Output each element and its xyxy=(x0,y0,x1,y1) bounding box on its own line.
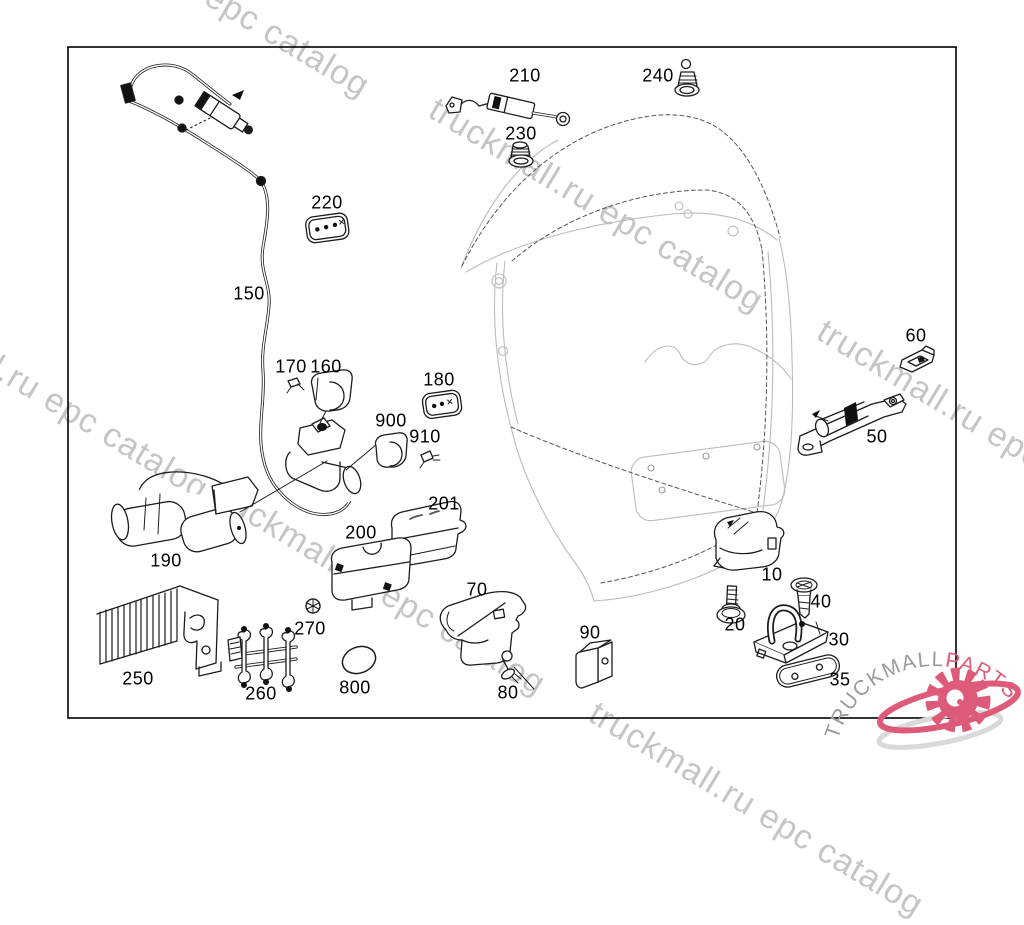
parts-drawings xyxy=(97,60,934,693)
pin-910-drawing xyxy=(420,451,440,468)
tailgate-lock-10-drawing xyxy=(714,512,784,571)
grommet-230-drawing xyxy=(509,142,533,167)
part-label-260: 260 xyxy=(245,684,277,705)
bracket-900-drawing xyxy=(375,433,407,467)
connector-plate-220-drawing xyxy=(305,212,350,244)
nut-270-drawing xyxy=(306,599,320,613)
ball-stud-240-drawing xyxy=(675,60,699,97)
part-label-230: 230 xyxy=(505,124,537,145)
part-label-270: 270 xyxy=(294,619,326,640)
lamp-60-drawing xyxy=(900,346,934,372)
part-label-180: 180 xyxy=(423,370,455,391)
part-label-30: 30 xyxy=(828,630,849,651)
part-label-910: 910 xyxy=(409,427,441,448)
part-label-900: 900 xyxy=(375,411,407,432)
pump-unit-drawing xyxy=(285,399,377,508)
seal-ring-800-drawing xyxy=(339,642,380,678)
part-label-20: 20 xyxy=(724,615,745,636)
part-label-150: 150 xyxy=(233,284,265,305)
part-label-35: 35 xyxy=(829,670,850,691)
part-label-50: 50 xyxy=(866,427,887,448)
striker-30-drawing xyxy=(754,608,828,663)
gas-strut-210-drawing xyxy=(446,93,570,126)
part-label-40: 40 xyxy=(810,592,831,613)
part-label-60: 60 xyxy=(905,326,926,347)
part-label-80: 80 xyxy=(497,683,518,704)
part-label-160: 160 xyxy=(310,357,342,378)
strap-bracket-260-drawing xyxy=(228,623,296,692)
lamp-unit-50-drawing xyxy=(798,394,906,455)
part-label-240: 240 xyxy=(642,66,674,87)
part-label-200: 200 xyxy=(345,523,377,544)
clip-170-drawing xyxy=(287,378,304,393)
part-label-210: 210 xyxy=(509,66,541,87)
part-label-170: 170 xyxy=(275,357,307,378)
truckmall-logo: TRUCKMALLPARTS xyxy=(821,648,1023,750)
connector-plate-180-drawing xyxy=(422,389,463,419)
epc-diagram-page: { "watermark": { "text": "truckmall.ru e… xyxy=(0,0,1024,750)
cover-200-drawing xyxy=(331,538,411,610)
handle-cover-70-drawing xyxy=(440,592,525,666)
diagram-canvas: TRUCKMALLPARTS xyxy=(0,0,1024,750)
part-label-220: 220 xyxy=(311,193,343,214)
part-label-250: 250 xyxy=(122,669,154,690)
part-label-190: 190 xyxy=(150,551,182,572)
part-label-10: 10 xyxy=(761,565,782,586)
part-label-70: 70 xyxy=(466,580,487,601)
control-unit-250-drawing xyxy=(97,586,221,676)
part-label-201: 201 xyxy=(428,494,460,515)
part-label-90: 90 xyxy=(579,623,600,644)
angle-bracket-90-drawing xyxy=(576,640,612,688)
part-label-800: 800 xyxy=(339,678,371,699)
